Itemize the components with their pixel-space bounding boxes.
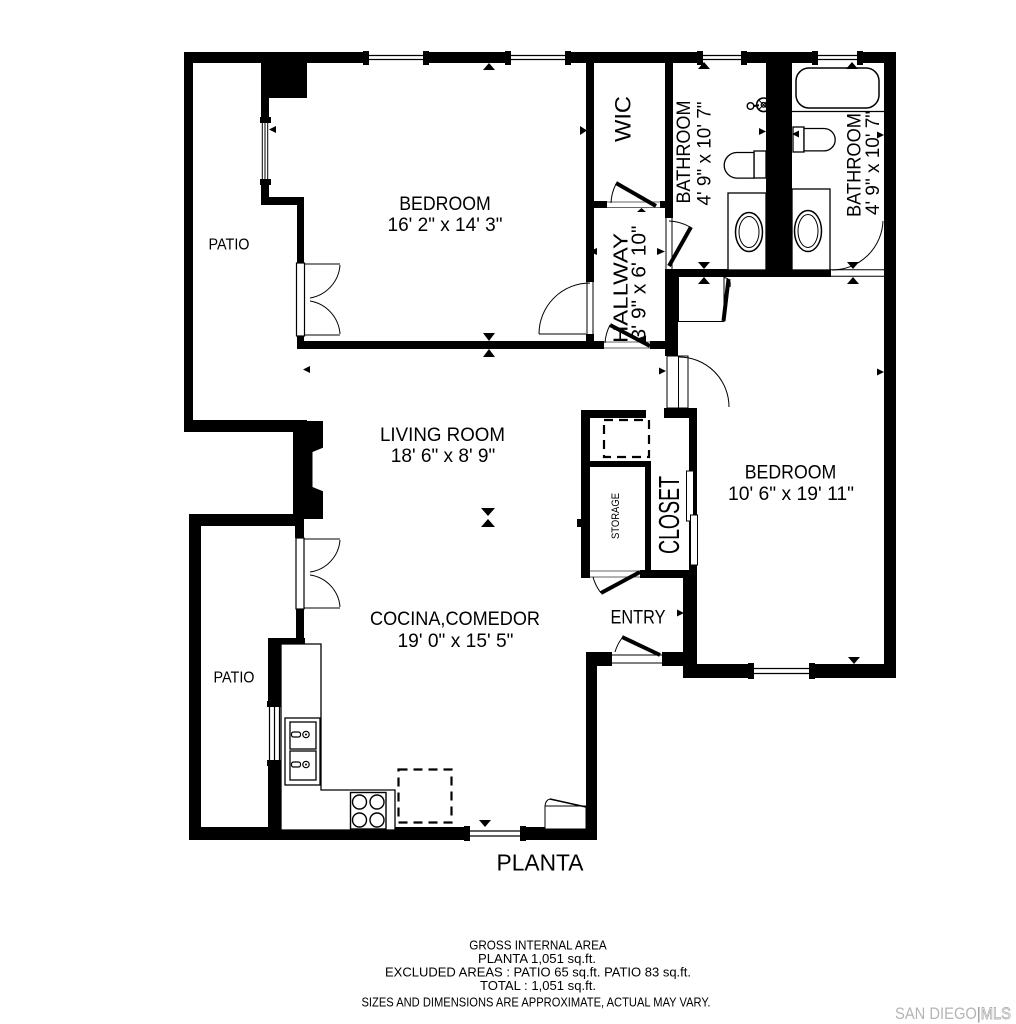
svg-text:BATHROOM: BATHROOM [673,101,695,204]
svg-text:COCINA,COMEDOR: COCINA,COMEDOR [370,608,540,630]
svg-text:PATIO: PATIO [209,237,250,254]
svg-text:10' 6" x 19' 11": 10' 6" x 19' 11" [728,483,854,505]
svg-text:BEDROOM: BEDROOM [745,462,837,484]
svg-text:PATIO: PATIO [214,670,255,687]
svg-text:19' 0" x 15' 5": 19' 0" x 15' 5" [398,630,514,652]
svg-text:CLOSET: CLOSET [654,476,686,554]
svg-text:SIZES AND DIMENSIONS ARE APPRO: SIZES AND DIMENSIONS ARE APPROXIMATE, AC… [362,995,711,1010]
svg-text:SAN DIEGO|MLS: SAN DIEGO|MLS [895,1004,1011,1023]
svg-text:BEDROOM: BEDROOM [399,193,491,215]
svg-text:4' 9" x 10' 7": 4' 9" x 10' 7" [694,101,716,205]
svg-text:WIC: WIC [611,96,636,142]
svg-text:LIVING ROOM: LIVING ROOM [380,424,505,446]
svg-text:4' 9" x 10' 7": 4' 9" x 10' 7" [862,111,884,215]
svg-text:STORAGE: STORAGE [610,493,622,539]
svg-text:PLANTA: PLANTA [497,850,584,876]
svg-text:ENTRY: ENTRY [611,608,666,629]
svg-text:TOTAL : 1,051 sq.ft.: TOTAL : 1,051 sq.ft. [480,978,596,993]
svg-text:16' 2" x 14' 3": 16' 2" x 14' 3" [388,214,503,236]
svg-text:3' 9" x 6' 10": 3' 9" x 6' 10" [628,226,651,341]
svg-text:18' 6" x 8' 9": 18' 6" x 8' 9" [391,445,496,467]
